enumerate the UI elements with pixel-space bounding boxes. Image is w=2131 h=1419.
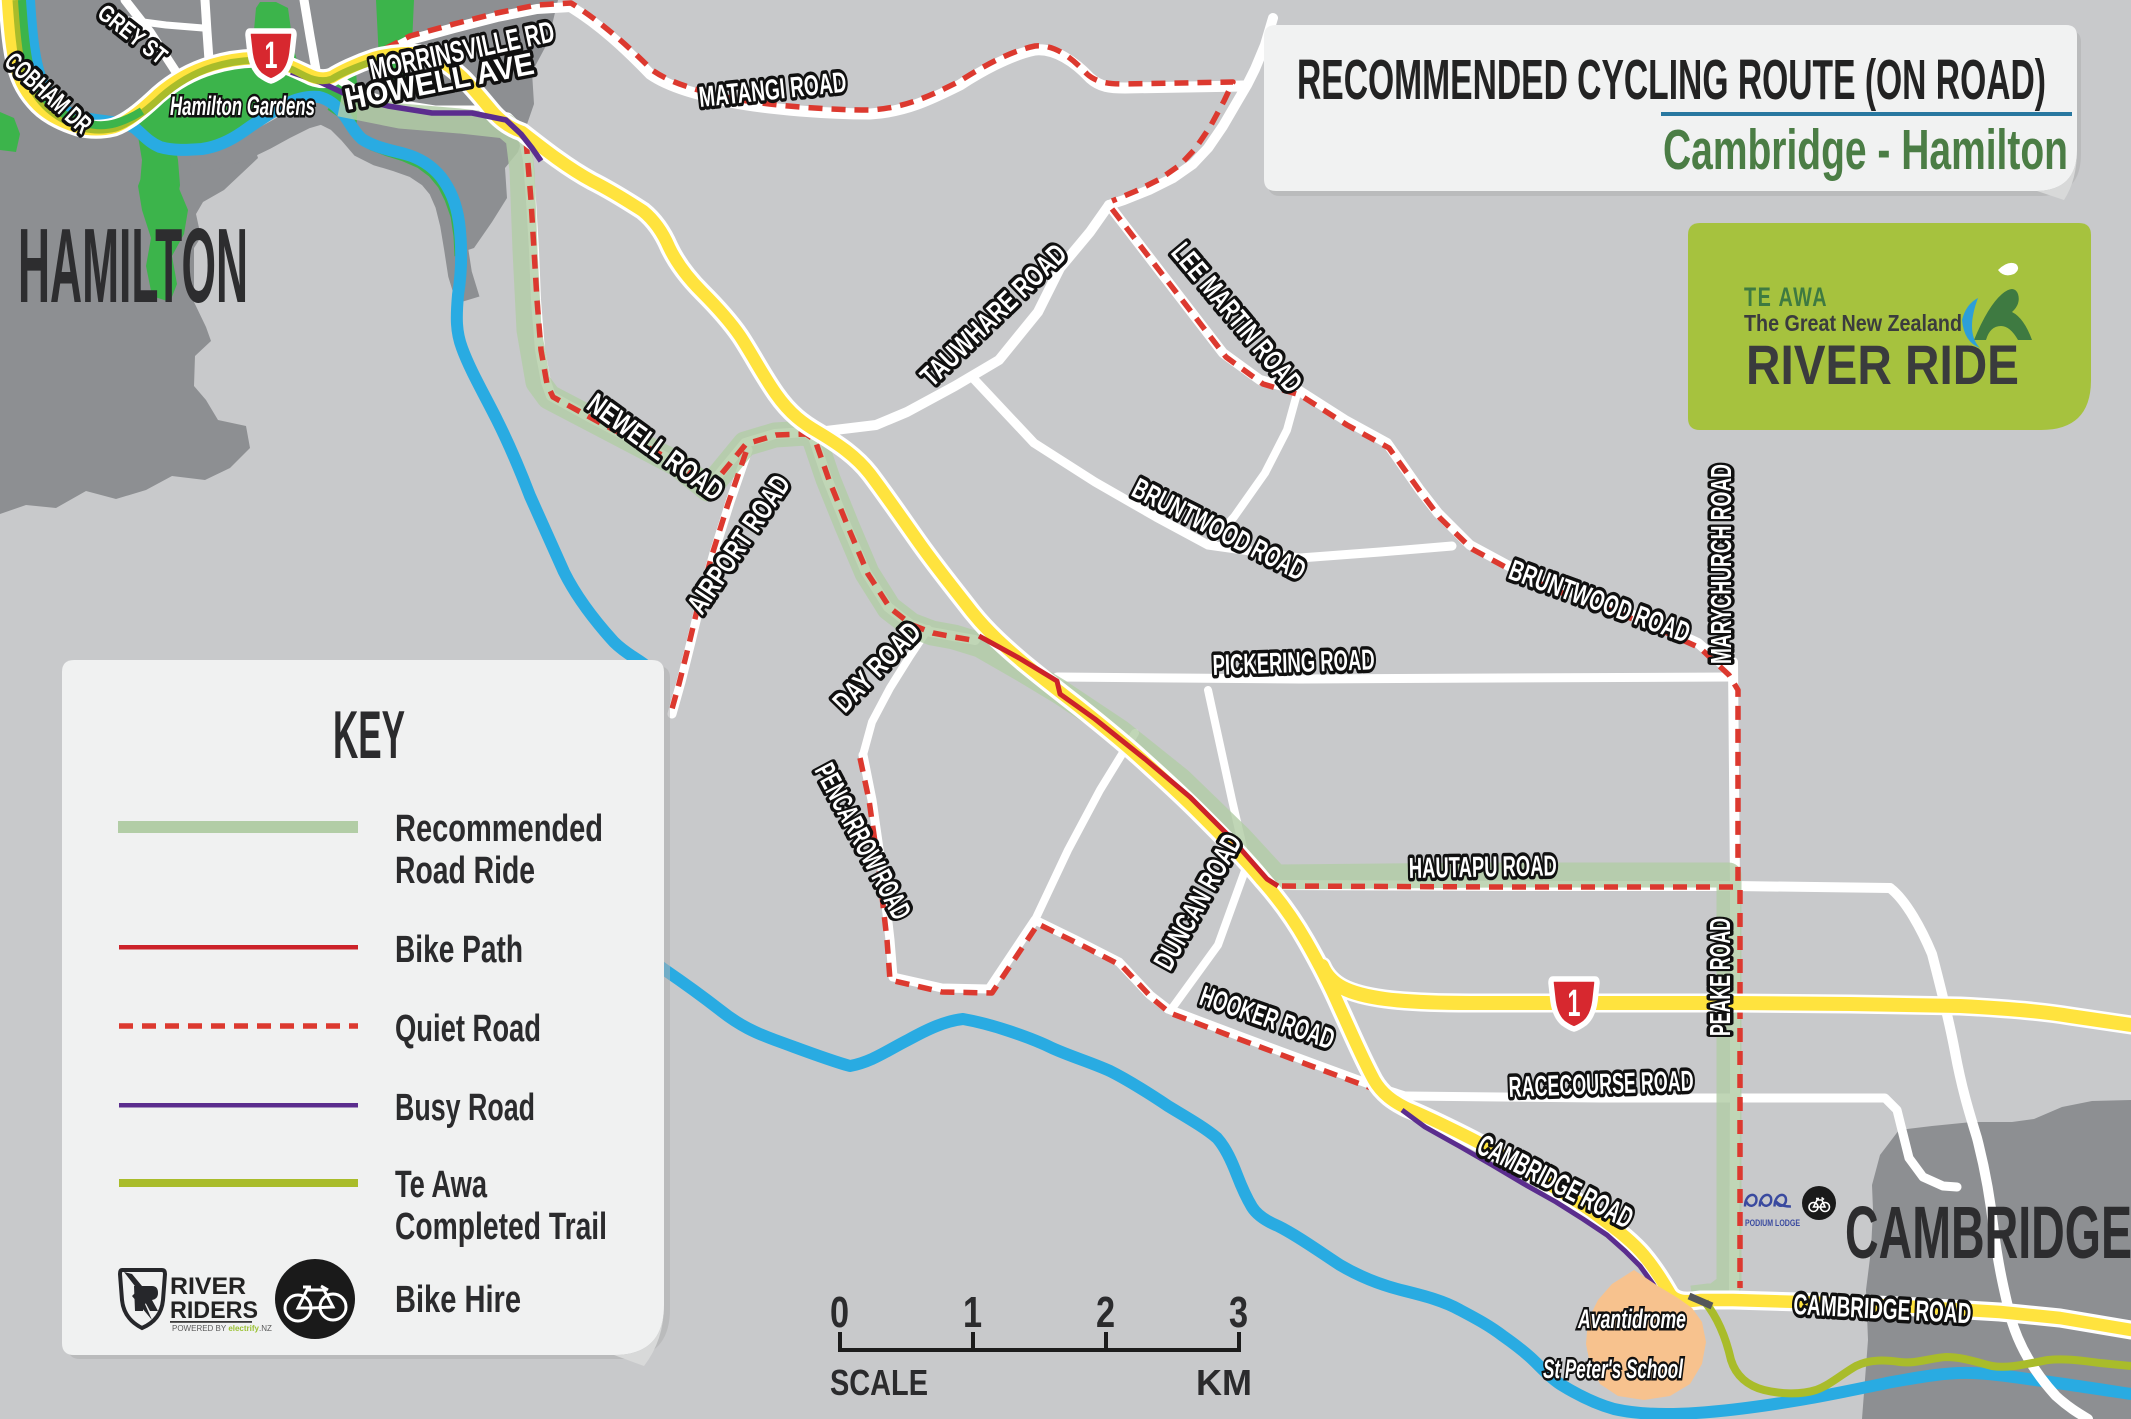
svg-text:Cambridge - Hamilton: Cambridge - Hamilton [1663, 118, 2068, 182]
svg-text:KEY: KEY [333, 697, 405, 773]
svg-text:RACECOURSE ROAD: RACECOURSE ROAD [1508, 1066, 1694, 1104]
svg-text:Avantidrome: Avantidrome [1577, 1304, 1686, 1334]
svg-text:Bike Hire: Bike Hire [395, 1279, 521, 1321]
svg-text:HAUTAPU ROAD: HAUTAPU ROAD [1409, 850, 1558, 885]
svg-text:RIVER RIDE: RIVER RIDE [1746, 333, 2019, 396]
svg-text:Te Awa: Te Awa [395, 1164, 488, 1206]
svg-text:TE AWA: TE AWA [1744, 282, 1828, 312]
svg-text:RECOMMENDED CYCLING ROUTE (ON: RECOMMENDED CYCLING ROUTE (ON ROAD) [1297, 48, 2046, 112]
svg-text:PODIUM LODGE: PODIUM LODGE [1745, 1218, 1800, 1229]
svg-text:Recommended: Recommended [395, 808, 603, 850]
svg-text:Bike Path: Bike Path [395, 929, 523, 971]
svg-text:1: 1 [963, 1288, 982, 1337]
svg-text:KM: KM [1196, 1362, 1252, 1403]
svg-text:POWERED BY electrify.NZ: POWERED BY electrify.NZ [172, 1324, 272, 1333]
svg-text:PEAKE ROAD: PEAKE ROAD [1705, 918, 1737, 1036]
svg-text:Hamilton Gardens: Hamilton Gardens [170, 91, 315, 121]
svg-text:St Peter's School: St Peter's School [1543, 1354, 1683, 1384]
svg-text:Quiet Road: Quiet Road [395, 1008, 541, 1050]
svg-text:MARYCHURCH ROAD: MARYCHURCH ROAD [1706, 464, 1738, 664]
svg-text:HAMILTON: HAMILTON [18, 207, 248, 325]
svg-text:Completed Trail: Completed Trail [395, 1206, 607, 1248]
svg-text:1: 1 [1568, 983, 1581, 1025]
svg-text:CAMBRIDGE: CAMBRIDGE [1845, 1191, 2131, 1274]
svg-text:2: 2 [1096, 1288, 1115, 1337]
svg-text:3: 3 [1229, 1288, 1248, 1337]
svg-text:Busy Road: Busy Road [395, 1087, 535, 1129]
svg-text:PICKERING ROAD: PICKERING ROAD [1212, 644, 1375, 682]
svg-text:0: 0 [830, 1288, 849, 1337]
svg-text:Road Ride: Road Ride [395, 850, 535, 892]
svg-text:RIDERS: RIDERS [170, 1297, 258, 1324]
svg-text:1: 1 [265, 35, 278, 77]
svg-text:RIVER: RIVER [170, 1273, 246, 1300]
svg-text:SCALE: SCALE [830, 1362, 928, 1403]
